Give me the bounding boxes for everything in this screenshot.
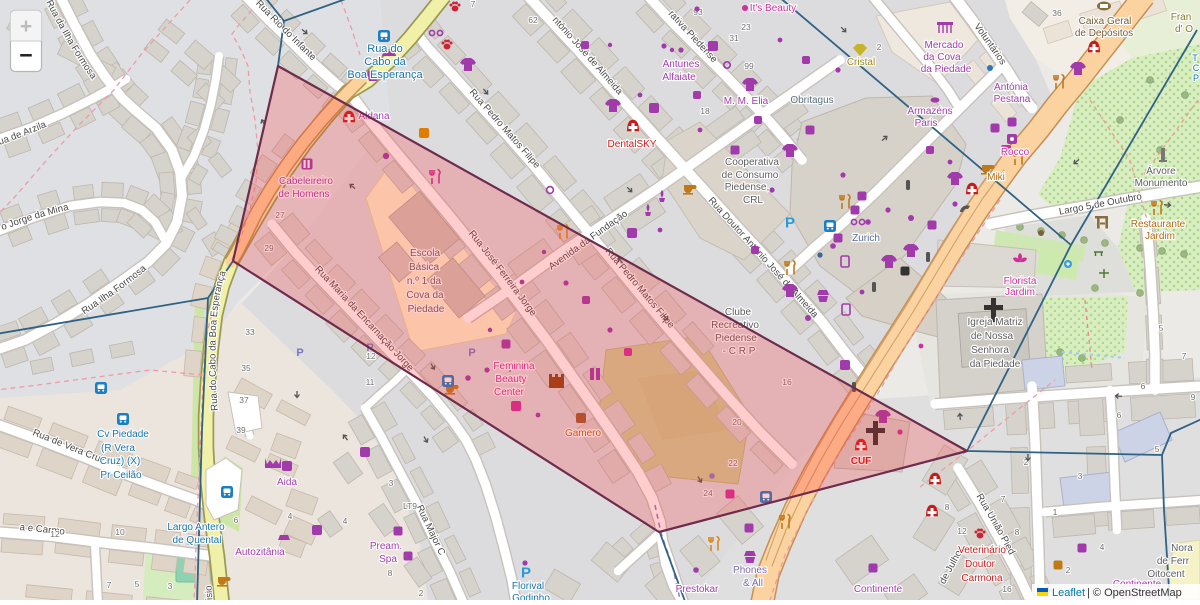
svg-text:+: +	[20, 15, 32, 38]
svg-text:Phones: Phones	[733, 565, 767, 576]
svg-text:Rocco: Rocco	[1001, 147, 1030, 158]
svg-text:de Ferr: de Ferr	[1157, 556, 1190, 567]
svg-text:da Piedade: da Piedade	[970, 359, 1021, 370]
svg-text:Armazéns: Armazéns	[907, 106, 952, 117]
svg-text:5: 5	[1155, 444, 1160, 454]
svg-text:6: 6	[1141, 381, 1146, 391]
svg-text:Paris: Paris	[915, 118, 938, 129]
svg-text:7: 7	[107, 580, 112, 590]
svg-text:3: 3	[1078, 471, 1083, 481]
svg-text:33: 33	[245, 327, 255, 337]
svg-text:Igreja Matriz: Igreja Matriz	[967, 317, 1022, 328]
svg-text:4: 4	[1100, 542, 1105, 552]
svg-text:4: 4	[343, 516, 348, 526]
svg-text:Rua do: Rua do	[367, 43, 402, 55]
svg-text:12: 12	[957, 526, 967, 536]
svg-text:3: 3	[168, 581, 173, 591]
svg-text:Cruz) (X): Cruz) (X)	[100, 456, 141, 467]
svg-text:Piedense,: Piedense,	[725, 182, 769, 193]
svg-text:Pestana: Pestana	[994, 94, 1031, 105]
svg-text:C: C	[1193, 63, 1200, 73]
svg-text:de Nossa: de Nossa	[971, 331, 1014, 342]
svg-text:Árvore: Árvore	[1146, 164, 1176, 177]
svg-text:de Depósitos: de Depósitos	[1075, 28, 1133, 39]
svg-text:16: 16	[1002, 584, 1012, 594]
svg-text:Cabo da: Cabo da	[364, 56, 406, 68]
svg-text:Largo Antero: Largo Antero	[167, 522, 225, 533]
svg-text:Cv Piedade: Cv Piedade	[97, 429, 149, 440]
svg-text:9: 9	[1191, 392, 1196, 402]
svg-text:Florista: Florista	[1004, 276, 1037, 287]
svg-text:Senhora: Senhora	[971, 345, 1009, 356]
svg-text:5: 5	[135, 579, 140, 589]
svg-text:2: 2	[1066, 565, 1071, 575]
svg-text:Antunes: Antunes	[663, 59, 700, 70]
svg-text:39: 39	[236, 425, 246, 435]
svg-text:M. M. Elia: M. M. Elia	[724, 96, 769, 107]
svg-text:P: P	[296, 347, 303, 359]
svg-text:Alfaiate: Alfaiate	[662, 72, 696, 83]
svg-text:62: 62	[528, 15, 538, 25]
svg-text:3: 3	[389, 478, 394, 488]
svg-text:6: 6	[234, 515, 239, 525]
svg-text:5: 5	[1159, 323, 1164, 333]
svg-text:P: P	[1193, 73, 1199, 83]
svg-text:da Cova: da Cova	[923, 52, 961, 63]
svg-text:Carmona: Carmona	[961, 573, 1003, 584]
svg-text:35: 35	[241, 363, 251, 373]
svg-text:Jardim: Jardim	[1145, 231, 1175, 242]
svg-text:de Quental: de Quental	[173, 535, 222, 546]
svg-text:31: 31	[729, 33, 739, 43]
svg-text:Pream.: Pream.	[370, 541, 402, 552]
svg-text:Obritagus: Obritagus	[790, 95, 833, 106]
svg-text:CRL: CRL	[743, 195, 763, 206]
svg-text:(R Vera: (R Vera	[101, 443, 135, 454]
svg-text:Florival: Florival	[512, 581, 544, 592]
svg-text:Aida: Aida	[277, 477, 297, 488]
svg-text:Antónia: Antónia	[994, 82, 1028, 93]
svg-text:& All: & All	[743, 578, 763, 589]
svg-text:de Consumo: de Consumo	[722, 170, 779, 181]
svg-text:d' O: d' O	[1175, 24, 1193, 35]
svg-text:P: P	[785, 214, 795, 231]
svg-text:Mercado: Mercado	[925, 40, 964, 51]
svg-text:DentalSKY: DentalSKY	[608, 139, 657, 150]
svg-text:Restaurante: Restaurante	[1131, 219, 1186, 230]
svg-text:8: 8	[945, 502, 950, 512]
svg-text:Prestokar: Prestokar	[676, 584, 719, 595]
svg-text:Cristal: Cristal	[847, 57, 875, 68]
svg-text:Doutor: Doutor	[965, 559, 996, 570]
svg-text:18: 18	[700, 106, 710, 116]
svg-text:It's Beauty: It's Beauty	[750, 3, 796, 14]
svg-text:Jardim: Jardim	[1005, 287, 1035, 298]
svg-text:Veterinário: Veterinário	[958, 545, 1006, 556]
svg-text:Oitocent: Oitocent	[1147, 569, 1184, 580]
svg-text:Zurich: Zurich	[852, 233, 880, 244]
svg-text:P: P	[521, 564, 531, 581]
svg-text:−: −	[19, 42, 32, 68]
svg-text:da Piedade: da Piedade	[921, 64, 972, 75]
svg-text:Boa Esperança: Boa Esperança	[347, 69, 423, 81]
svg-text:Godinho: Godinho	[512, 593, 550, 600]
svg-text:36: 36	[1052, 8, 1062, 18]
svg-text:Miki: Miki	[987, 172, 1005, 183]
svg-text:8: 8	[388, 568, 393, 578]
svg-text:23: 23	[741, 22, 751, 32]
svg-text:Leaflet: Leaflet	[1052, 587, 1085, 599]
svg-text:1: 1	[1053, 507, 1058, 517]
svg-text:Continente: Continente	[854, 584, 903, 595]
svg-text:8: 8	[1015, 527, 1020, 537]
svg-text:99: 99	[744, 61, 754, 71]
svg-text:LT9: LT9	[403, 501, 417, 511]
svg-text:2: 2	[877, 42, 882, 52]
svg-text:Monumento: Monumento	[1135, 178, 1188, 189]
svg-text:Pr Ceilão: Pr Ceilão	[100, 470, 142, 481]
svg-text:12: 12	[50, 529, 60, 539]
svg-text:Fran: Fran	[1171, 12, 1192, 23]
svg-text:Clube: Clube	[725, 307, 752, 318]
svg-text:Caixa Geral: Caixa Geral	[1079, 16, 1132, 27]
svg-text:Spa: Spa	[379, 554, 397, 565]
svg-text:6: 6	[1117, 410, 1122, 420]
svg-text:Nora: Nora	[1171, 543, 1193, 554]
svg-text:37: 37	[239, 395, 249, 405]
svg-text:| © OpenStreetMap: | © OpenStreetMap	[1087, 587, 1182, 599]
svg-text:Autozitânia: Autozitânia	[235, 547, 285, 558]
svg-text:T: T	[1192, 53, 1198, 63]
svg-text:7: 7	[471, 0, 476, 9]
svg-text:Cooperativa: Cooperativa	[725, 157, 779, 168]
svg-text:7: 7	[1001, 494, 1006, 504]
svg-text:11: 11	[366, 377, 375, 387]
svg-text:7: 7	[1182, 351, 1187, 361]
svg-text:10: 10	[115, 527, 125, 537]
svg-text:4: 4	[288, 511, 293, 521]
svg-text:2: 2	[419, 588, 424, 598]
